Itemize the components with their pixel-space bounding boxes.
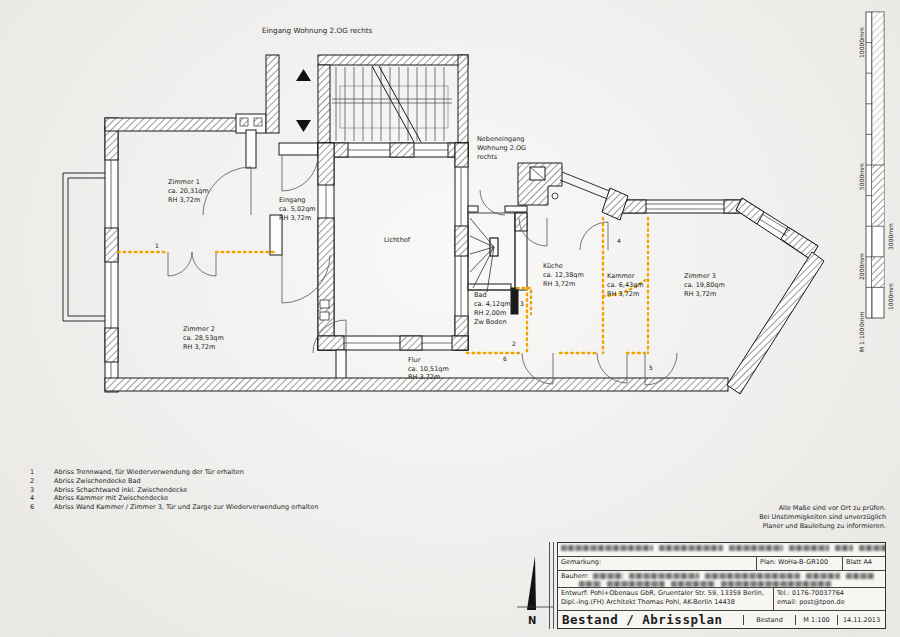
marker-3: 3 [520, 300, 524, 307]
main-staircase [332, 66, 452, 142]
verification-notes: Alle Maße sind vor Ort zu prüfen. Bei Un… [759, 504, 886, 531]
room-label-zimmer2: Zimmer 2 ca. 28,53qm RH 3,72m [183, 325, 226, 351]
room-label-bad: Bad ca. 4,12qm RH 2,00m Zw Boden [474, 291, 513, 326]
title-block-client-row: Bauherr: [558, 571, 885, 588]
marker-4: 4 [617, 237, 621, 244]
architect-phone: Tel.: 0176-70037764 [777, 589, 882, 598]
drawing-title: Bestand / Abrissplan [558, 611, 743, 628]
title-block-architect-row: Entwurf: Pohl+Obenaus GbR, Gruentaler St… [558, 588, 885, 611]
room-label-zimmer3: Zimmer 3 ca. 19,80qm RH 3,72m [684, 272, 727, 298]
legend-item-number: 6 [30, 503, 54, 512]
legend-item: 1 Abriss Trennwand, für Wiederverwendung… [30, 468, 318, 477]
scale-tick-2000: 2000mm [858, 253, 865, 280]
balcony [63, 173, 107, 321]
legend-item-number: 4 [30, 494, 54, 503]
north-arrow-icon [527, 556, 536, 610]
demolition-markers: 1 2 3 4 5 6 [155, 237, 653, 371]
scale-tick-1000: 1000mm [887, 283, 894, 310]
side-entrance-label: Nebeneingang Wohnung 2.OG rechts [477, 135, 528, 161]
room-label-eingang: Eingang ca. 5,02qm RH 3,72m [279, 196, 318, 222]
room-label-lichthof: Lichthof [384, 236, 411, 244]
drawing-scale: M 1:100 [795, 615, 837, 625]
drawing-status: Bestand [743, 615, 795, 625]
demolition-legend: 1 Abriss Trennwand, für Wiederverwendung… [30, 468, 318, 512]
legend-item-text: Abriss Trennwand, für Wiederverwendung d… [54, 468, 244, 477]
north-letter: N [528, 615, 536, 626]
title-block-plan-row: Gemarkung: Plan: WoHa-B-GR100 Blatt A4 [558, 557, 885, 571]
winder-staircase [468, 213, 515, 292]
room-label-flur: Flur ca. 10,51qm RH 3,72m [408, 356, 451, 381]
title-block-spine [549, 542, 554, 629]
architect-line1: Entwurf: Pohl+Obenaus GbR, Gruentaler St… [561, 589, 770, 598]
title-block-project-row [558, 543, 885, 557]
redacted-client-text [561, 580, 882, 587]
arrow-down-icon [296, 120, 311, 132]
scale-bar: 10000mm 5000mm 3000mm 2000mm 1000mm 0mm … [858, 12, 894, 352]
room-label-kueche: Küche ca. 12,38qm RH 3,72m [543, 262, 586, 288]
legend-item: 3 Abriss Schachtwand inkl. Zwischendecke [30, 486, 318, 495]
gemarkung-label: Gemarkung: [558, 557, 756, 570]
room-label-zimmer1: Zimmer 1 ca. 20,31qm RH 3,72m [168, 178, 211, 204]
marker-2: 2 [512, 340, 516, 347]
vestibule-direction-arrows [296, 69, 311, 132]
arrow-up-icon [296, 69, 311, 81]
legend-item-text: Abriss Kammer mit Zwischendecke [54, 494, 168, 503]
scale-tick-3000: 3000mm [887, 223, 894, 250]
note-line: Planer und Bauleitung zu informieren. [759, 522, 886, 531]
note-line: Alle Maße sind vor Ort zu prüfen. [759, 504, 886, 513]
redacted-project-text [558, 543, 885, 556]
legend-item: 2 Abriss Zwischendecke Bad [30, 477, 318, 486]
legend-item-text: Abriss Wand Kammer / Zimmer 3, Tür und Z… [54, 503, 318, 512]
drawing-date: 14.11.2013 [837, 615, 885, 625]
legend-item-text: Abriss Zwischendecke Bad [54, 477, 141, 486]
architect-line2: Dipl.-Ing.(FH) Architekt Thomas Pohl, AK… [561, 598, 770, 607]
legend-item-number: 2 [30, 477, 54, 486]
bauherr-label: Bauherr: [561, 572, 589, 580]
legend-item-number: 1 [30, 468, 54, 477]
room-label-kammer: Kammer ca. 6,43qm RH 3,72m [607, 272, 646, 298]
scale-tick-0: 0mm [858, 311, 865, 327]
plan-number: Plan: WoHa-B-GR100 [756, 557, 842, 570]
drawing-sheet: 1 2 3 4 5 6 Eingang Wohnung 2.OG rechts … [0, 0, 900, 637]
walls [63, 55, 824, 394]
sheet-size: Blatt A4 [842, 557, 885, 570]
scale-tick-5000: 5000mm [858, 163, 865, 190]
marker-5: 5 [649, 364, 653, 371]
title-block: Gemarkung: Plan: WoHa-B-GR100 Blatt A4 B… [557, 542, 886, 629]
legend-item: 6 Abriss Wand Kammer / Zimmer 3, Tür und… [30, 503, 318, 512]
entrance-label: Eingang Wohnung 2.OG rechts [262, 26, 373, 35]
note-line: Bei Unstimmigkeiten sind unverzüglich [759, 513, 886, 522]
legend-item-text: Abriss Schachtwand inkl. Zwischendecke [54, 486, 187, 495]
title-block-title-row: Bestand / Abrissplan Bestand M 1:100 14.… [558, 611, 885, 628]
marker-6: 6 [503, 355, 507, 362]
scale-tick-10000: 10000mm [858, 27, 865, 58]
north-arrow: N [517, 556, 553, 626]
marker-1: 1 [155, 242, 159, 249]
architect-email: email: post@tpon.de [777, 598, 882, 607]
legend-item: 4 Abriss Kammer mit Zwischendecke [30, 494, 318, 503]
legend-item-number: 3 [30, 486, 54, 495]
scale-bar-scale-label: M 1:100 [858, 327, 865, 352]
